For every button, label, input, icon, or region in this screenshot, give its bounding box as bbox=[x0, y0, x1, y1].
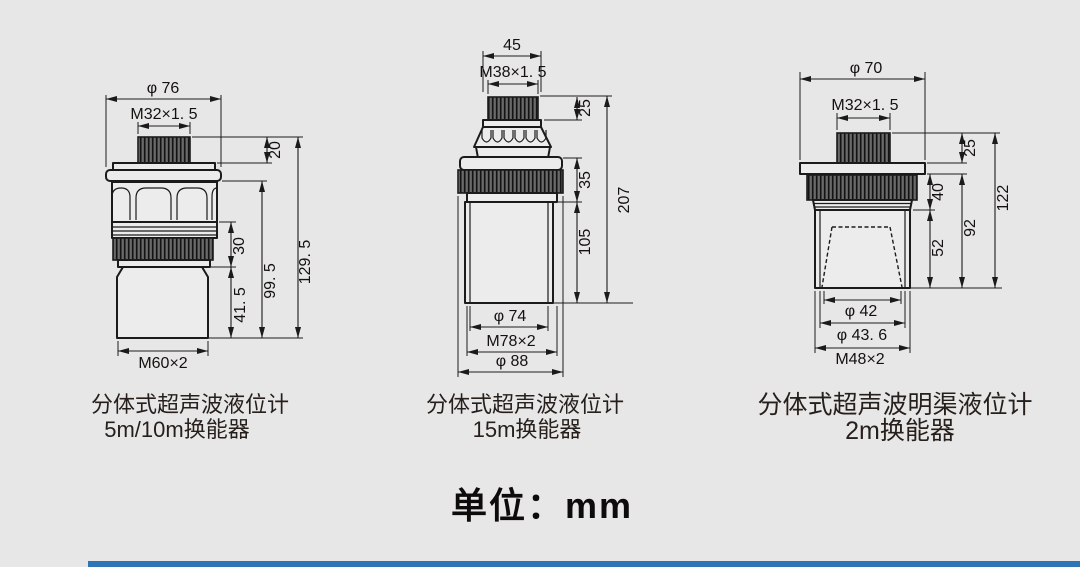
dim-neck-height: 30 bbox=[231, 237, 248, 255]
dim-cap-height: 25 bbox=[962, 139, 979, 157]
flange bbox=[460, 157, 562, 170]
dim-top-thread: M32×1. 5 bbox=[831, 97, 898, 114]
technical-drawing-canvas: φ 76 M32×1. 5 20 30 41. 5 99. 5 129. 5 M… bbox=[0, 0, 1080, 567]
knurled-cap bbox=[837, 133, 890, 163]
body-step bbox=[467, 193, 557, 202]
top-plate bbox=[113, 163, 215, 170]
flange bbox=[106, 170, 221, 181]
knurled-cap bbox=[488, 97, 538, 120]
dim-ring-height: 40 bbox=[930, 183, 947, 201]
caption-line2: 2m换能器 bbox=[845, 417, 955, 445]
neck-ring bbox=[118, 260, 210, 267]
dim-inner-diameter: φ 74 bbox=[494, 308, 527, 325]
caption-line2: 15m换能器 bbox=[473, 417, 582, 442]
knurled-ring bbox=[458, 170, 563, 193]
bottom-accent-bar bbox=[88, 561, 1080, 567]
sensor-body bbox=[117, 267, 208, 338]
dim-bottom-thread: M60×2 bbox=[138, 355, 187, 372]
dim-body-height: 105 bbox=[577, 229, 594, 256]
unit-note: 单位：mm bbox=[451, 485, 633, 526]
knurled-ring bbox=[807, 175, 917, 200]
dim-horn-diameter: φ 42 bbox=[845, 303, 878, 320]
sensor-body bbox=[815, 210, 910, 288]
neck-rings bbox=[813, 200, 912, 210]
drawing-sheet: φ 76 M32×1. 5 20 30 41. 5 99. 5 129. 5 M… bbox=[0, 0, 1080, 567]
knurled-ring bbox=[113, 238, 213, 260]
caption-line1: 分体式超声波液位计 bbox=[426, 392, 624, 417]
dim-top-thread: M38×1. 5 bbox=[479, 64, 546, 81]
cap-step-plate bbox=[483, 120, 541, 127]
dim-bottom-thread: M48×2 bbox=[835, 351, 884, 368]
dim-bottom-thread: M78×2 bbox=[486, 333, 535, 350]
dim-lower-height: 92 bbox=[962, 219, 979, 237]
caption-line2: 5m/10m换能器 bbox=[104, 417, 249, 442]
dim-outer-diameter: φ 88 bbox=[496, 353, 529, 370]
dim-top-thread: M32×1. 5 bbox=[130, 106, 197, 123]
dim-cap-height: 25 bbox=[577, 99, 594, 117]
dim-lower-height: 99. 5 bbox=[262, 263, 279, 299]
knurled-cap bbox=[138, 137, 190, 163]
caption-line1: 分体式超声波液位计 bbox=[91, 392, 289, 417]
caption-line1: 分体式超声波明渠液位计 bbox=[757, 391, 1032, 419]
dim-body-height: 52 bbox=[930, 239, 947, 257]
dim-flange-height: 35 bbox=[577, 171, 594, 189]
dim-inner-diameter: φ 43. 6 bbox=[837, 327, 888, 344]
dim-body-height: 41. 5 bbox=[232, 287, 249, 323]
mounting-plate bbox=[800, 163, 925, 174]
dim-top-diameter: φ 70 bbox=[850, 60, 883, 77]
dim-total-height: 129. 5 bbox=[297, 240, 314, 285]
sensor-body bbox=[465, 202, 553, 303]
dim-top-diameter: φ 76 bbox=[147, 80, 180, 97]
dim-cap-height: 20 bbox=[267, 141, 284, 159]
dim-total-height: 122 bbox=[995, 185, 1012, 212]
dim-top-width: 45 bbox=[503, 37, 521, 54]
dim-total-height: 207 bbox=[616, 187, 633, 214]
